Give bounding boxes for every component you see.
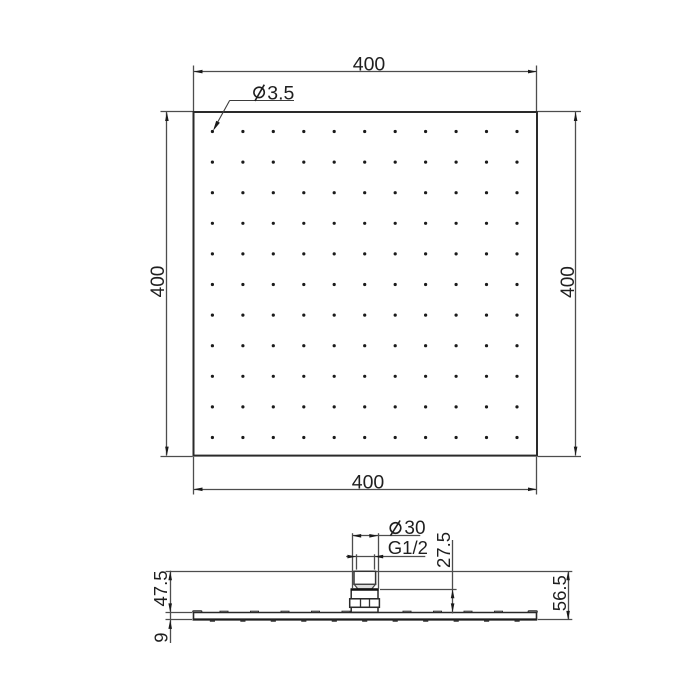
svg-text:400: 400 <box>353 53 386 75</box>
svg-text:400: 400 <box>352 471 385 493</box>
svg-text:3.5: 3.5 <box>267 83 294 105</box>
svg-text:47.5: 47.5 <box>150 570 171 606</box>
svg-text:56.5: 56.5 <box>549 575 570 611</box>
svg-text:30: 30 <box>404 518 425 539</box>
svg-text:27.5: 27.5 <box>433 532 454 568</box>
svg-text:400: 400 <box>148 266 169 298</box>
svg-text:400: 400 <box>558 266 579 298</box>
svg-text:9: 9 <box>150 632 171 642</box>
svg-text:G1/2: G1/2 <box>388 537 428 558</box>
